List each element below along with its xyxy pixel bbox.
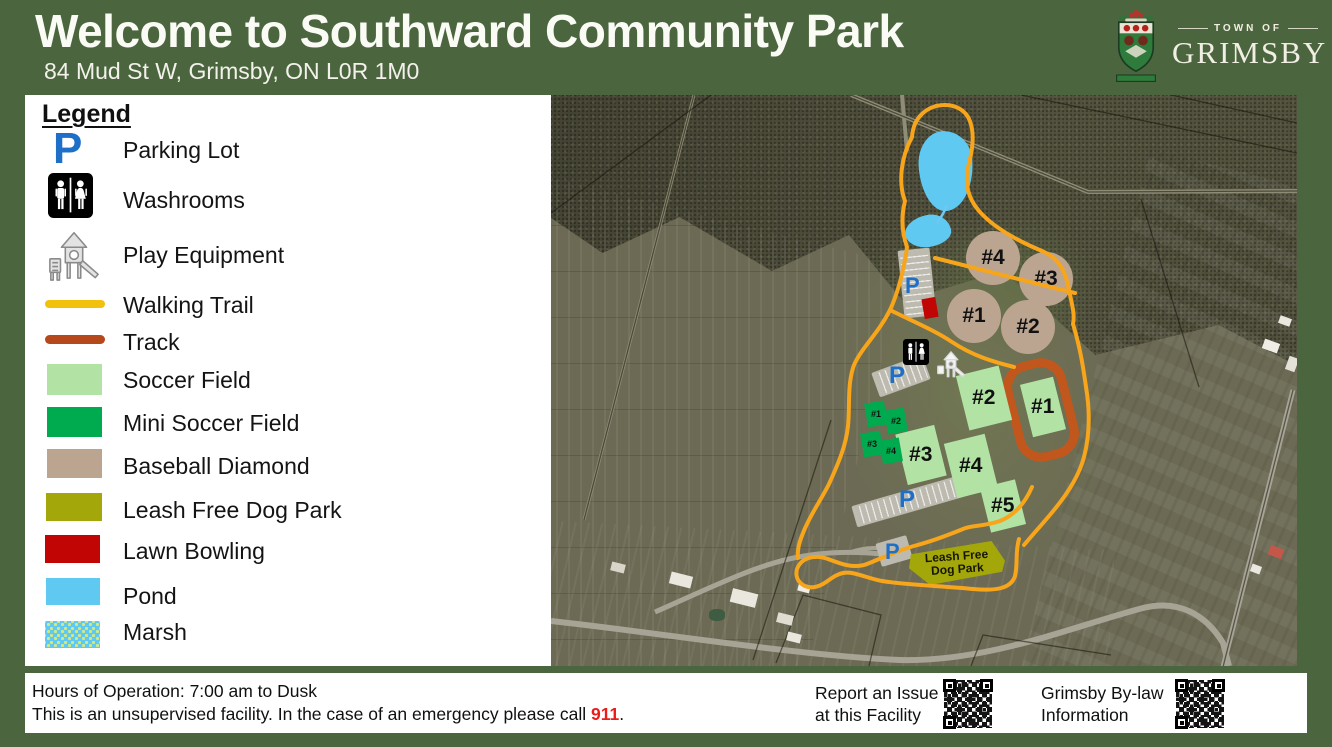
- walking-trail-swatch: [45, 300, 105, 308]
- legend-label-marsh: Marsh: [123, 619, 187, 646]
- page-title: Welcome to Southward Community Park: [35, 4, 904, 58]
- parking-marker-south: P: [899, 488, 915, 512]
- legend-label-washrooms: Washrooms: [123, 187, 245, 214]
- pond-swatch: [46, 578, 100, 605]
- parking-marker-dog-park: P: [885, 541, 900, 563]
- washrooms-map-icon: [903, 337, 929, 367]
- leash-free-dog-park-swatch: [46, 493, 102, 521]
- legend-label-play-equipment: Play Equipment: [123, 242, 284, 269]
- legend-label-parking: Parking Lot: [123, 137, 239, 164]
- lawn-bowling-swatch: [45, 535, 100, 563]
- baseball-diamond-swatch: [47, 449, 102, 478]
- soccer-field-swatch: [47, 364, 102, 395]
- park-map: #4 #3 #1 #2 #2 #1 #3 #4 #5 #1 #2 #3 #4: [551, 95, 1297, 666]
- grimsby-crest-icon: [1108, 8, 1164, 86]
- footer: Hours of Operation: 7:00 am to Dusk This…: [25, 673, 1307, 733]
- legend-label-baseball-diamond: Baseball Diamond: [123, 453, 310, 480]
- legend-panel: Legend P Parking Lot Washrooms: [25, 95, 551, 666]
- legend-label-pond: Pond: [123, 583, 177, 610]
- logo-rule-left: [1178, 28, 1208, 29]
- report-issue-label: Report an Issue at this Facility: [815, 682, 939, 726]
- mini-soccer-field-swatch: [47, 407, 102, 437]
- park-address: 84 Mud St W, Grimsby, ON L0R 1M0: [44, 58, 419, 85]
- header: Welcome to Southward Community Park 84 M…: [0, 0, 1332, 95]
- legend-label-track: Track: [123, 329, 180, 356]
- legend-label-walking-trail: Walking Trail: [123, 292, 254, 319]
- logo-rule-right: [1288, 28, 1318, 29]
- parking-lot-icon: P: [53, 127, 82, 171]
- play-equipment-icon: [43, 226, 105, 282]
- parking-marker-north: P: [905, 275, 920, 297]
- bylaw-info-qr-code: [1173, 677, 1227, 731]
- marsh-swatch: [45, 621, 100, 648]
- walking-trail: [551, 95, 1297, 666]
- legend-label-dog-park: Leash Free Dog Park: [123, 497, 342, 524]
- play-equipment-map-icon: [934, 348, 968, 379]
- washrooms-icon: [48, 173, 93, 218]
- parking-marker-central: P: [889, 364, 905, 388]
- logo-grimsby: GRIMSBY: [1172, 35, 1327, 71]
- logo-town-of: TOWN OF: [1172, 23, 1327, 34]
- town-logo: TOWN OF GRIMSBY: [1108, 8, 1327, 86]
- park-welcome-sign: Welcome to Southward Community Park 84 M…: [0, 0, 1332, 747]
- report-issue-qr-code: [941, 677, 995, 731]
- legend-label-lawn-bowling: Lawn Bowling: [123, 538, 265, 565]
- legend-label-mini-soccer-field: Mini Soccer Field: [123, 410, 299, 437]
- legend-label-soccer-field: Soccer Field: [123, 367, 251, 394]
- track-swatch: [45, 335, 105, 344]
- emergency-number: 911: [591, 704, 619, 724]
- hours-of-operation: Hours of Operation: 7:00 am to Dusk This…: [32, 680, 624, 726]
- bylaw-info-label: Grimsby By-law Information: [1041, 682, 1164, 726]
